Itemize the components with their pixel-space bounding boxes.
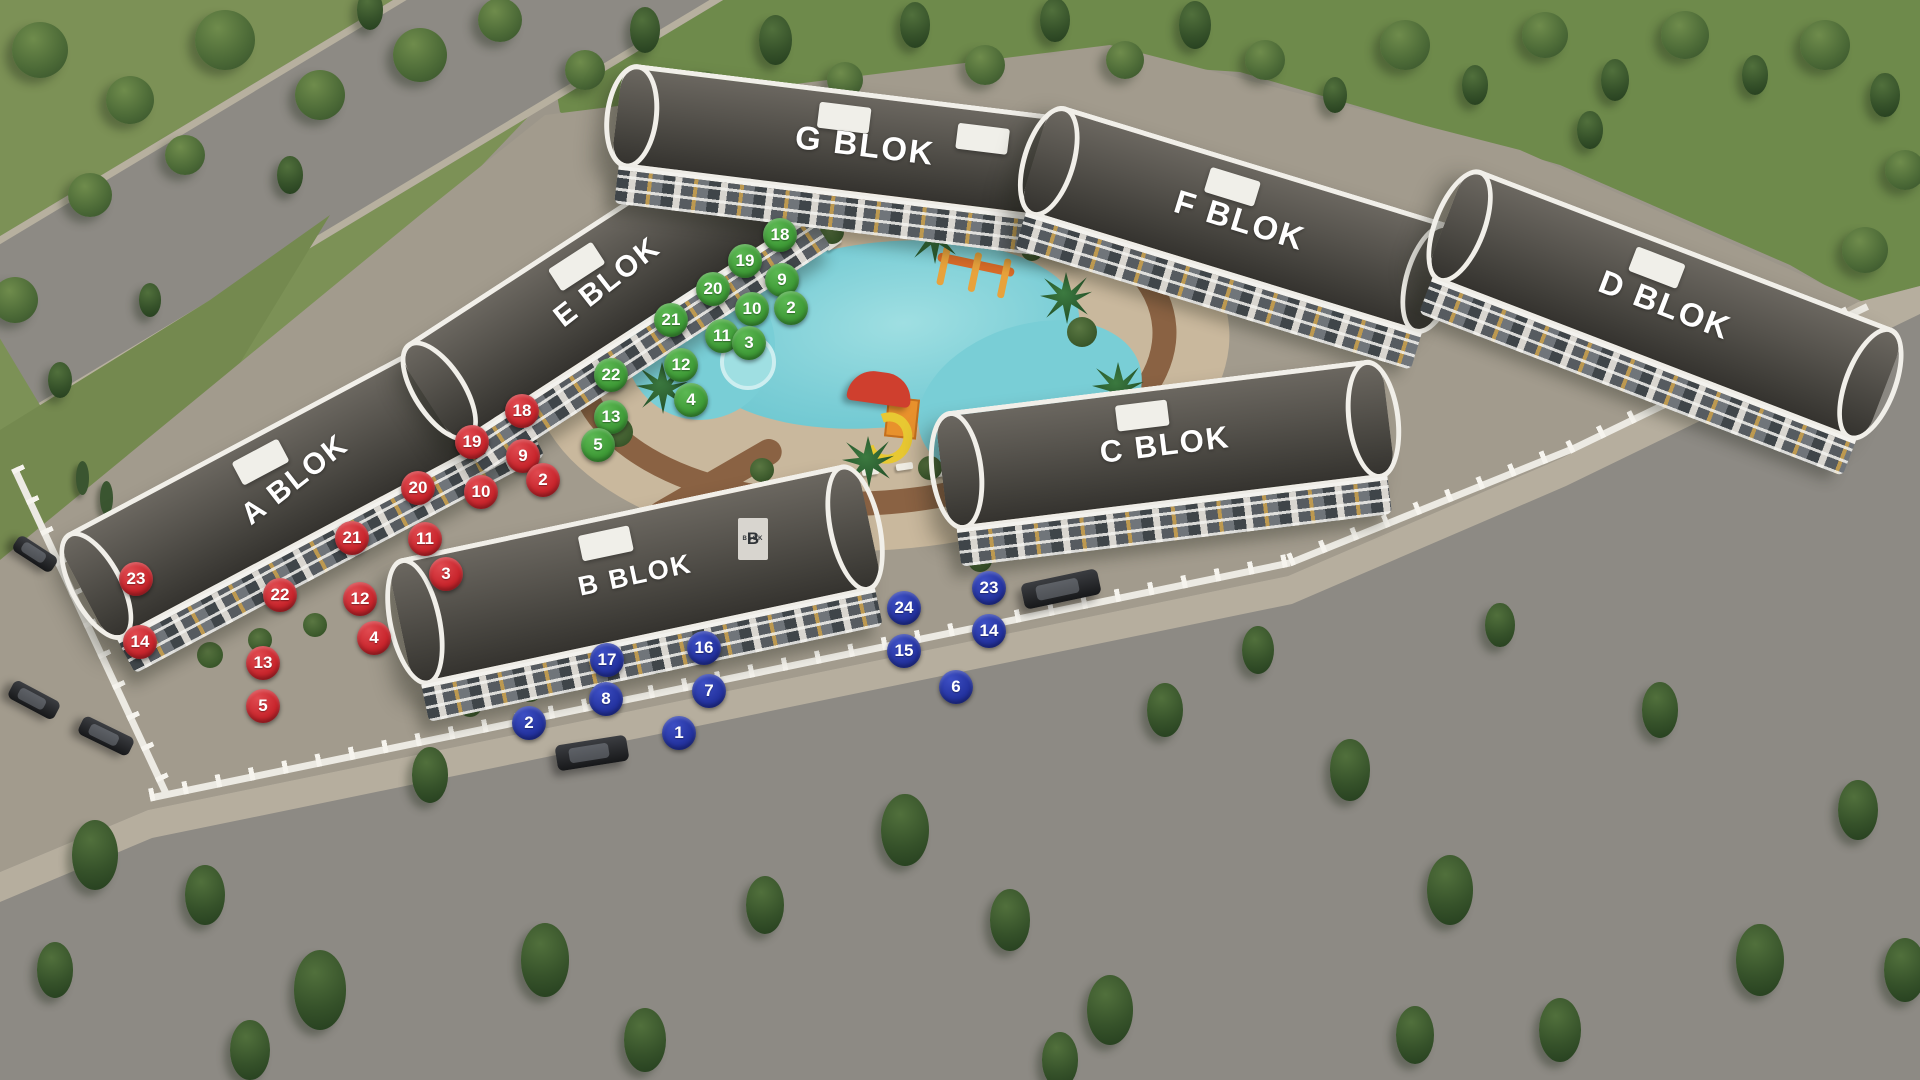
unit-badges-layer: 1819922010211132322124141351819920210211…: [0, 0, 1920, 1080]
site-plan-render: A BLOK E BLOK G BLOK F BLOK D BLOK: [0, 0, 1920, 1080]
unit-badge-e-4[interactable]: 4: [674, 383, 708, 417]
unit-badge-a-4[interactable]: 4: [357, 621, 391, 655]
unit-badge-a-19[interactable]: 19: [455, 425, 489, 459]
unit-badge-b-17[interactable]: 17: [590, 643, 624, 677]
unit-badge-b-6[interactable]: 6: [939, 670, 973, 704]
unit-badge-a-13[interactable]: 13: [246, 646, 280, 680]
unit-badge-e-19[interactable]: 19: [728, 244, 762, 278]
unit-badge-b-1[interactable]: 1: [662, 716, 696, 750]
unit-badge-a-18[interactable]: 18: [505, 394, 539, 428]
unit-badge-b-23[interactable]: 23: [972, 571, 1006, 605]
unit-badge-a-14[interactable]: 14: [123, 625, 157, 659]
unit-badge-a-5[interactable]: 5: [246, 689, 280, 723]
unit-badge-a-21[interactable]: 21: [335, 521, 369, 555]
unit-badge-e-22[interactable]: 22: [594, 358, 628, 392]
unit-badge-e-21[interactable]: 21: [654, 303, 688, 337]
unit-badge-b-16[interactable]: 16: [687, 631, 721, 665]
unit-badge-e-5[interactable]: 5: [581, 428, 615, 462]
unit-badge-a-20[interactable]: 20: [401, 471, 435, 505]
unit-badge-a-12[interactable]: 12: [343, 582, 377, 616]
unit-badge-a-2[interactable]: 2: [526, 463, 560, 497]
unit-badge-e-10[interactable]: 10: [735, 292, 769, 326]
unit-badge-a-11[interactable]: 11: [408, 522, 442, 556]
unit-badge-b-24[interactable]: 24: [887, 591, 921, 625]
unit-badge-e-2[interactable]: 2: [774, 291, 808, 325]
unit-badge-b-7[interactable]: 7: [692, 674, 726, 708]
unit-badge-e-20[interactable]: 20: [696, 272, 730, 306]
unit-badge-b-8[interactable]: 8: [589, 682, 623, 716]
unit-badge-a-22[interactable]: 22: [263, 578, 297, 612]
unit-badge-a-10[interactable]: 10: [464, 475, 498, 509]
unit-badge-b-14[interactable]: 14: [972, 614, 1006, 648]
unit-badge-a-23[interactable]: 23: [119, 562, 153, 596]
unit-badge-a-3[interactable]: 3: [429, 557, 463, 591]
unit-badge-e-12[interactable]: 12: [664, 348, 698, 382]
unit-badge-b-15[interactable]: 15: [887, 634, 921, 668]
unit-badge-e-18[interactable]: 18: [763, 218, 797, 252]
unit-badge-e-3[interactable]: 3: [732, 326, 766, 360]
unit-badge-b-2[interactable]: 2: [512, 706, 546, 740]
